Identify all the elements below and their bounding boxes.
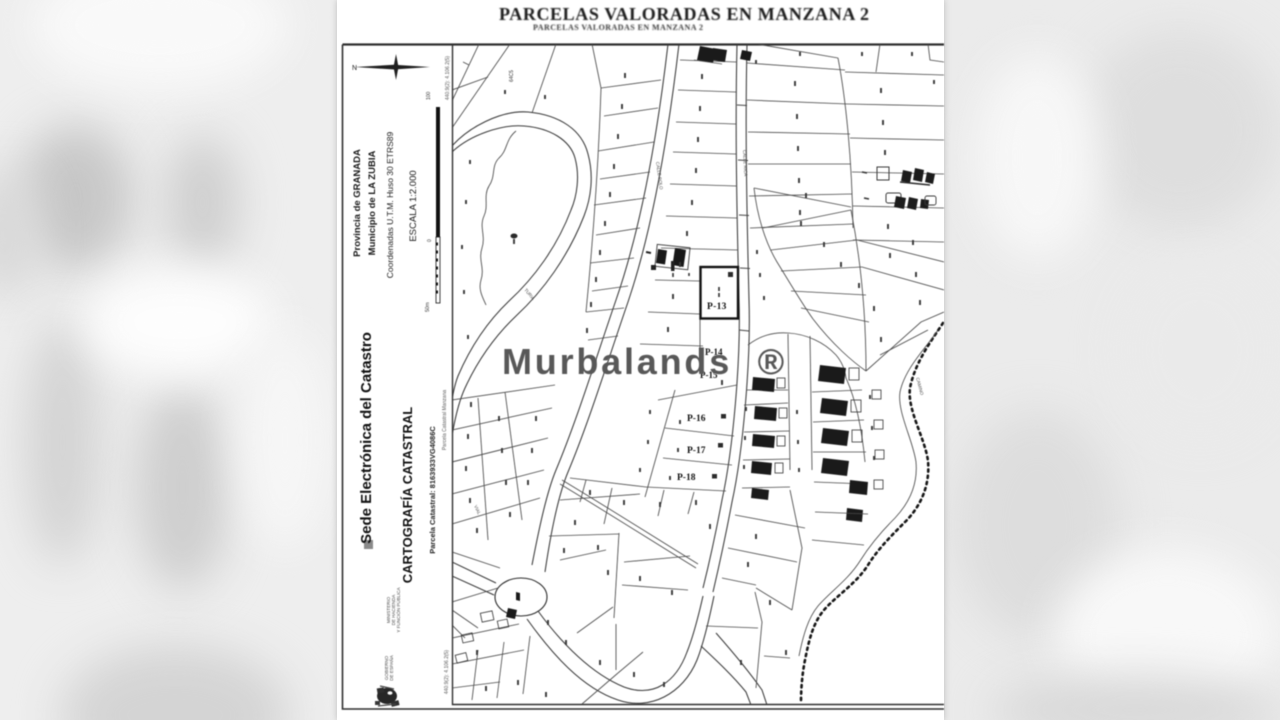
svg-text:64C5: 64C5 — [509, 70, 515, 82]
svg-text:Provincia de GRANADA: Provincia de GRANADA — [352, 149, 363, 257]
svg-text:100: 100 — [426, 91, 432, 100]
svg-text:N: N — [352, 65, 357, 72]
svg-text:50m: 50m — [425, 302, 431, 312]
svg-text:P-18: P-18 — [677, 473, 696, 483]
svg-text:P-16: P-16 — [687, 414, 706, 424]
svg-text:P-13: P-13 — [707, 302, 727, 312]
svg-text:CARTOGRAFÍA CATASTRAL: CARTOGRAFÍA CATASTRAL — [400, 407, 415, 584]
svg-text:ESCALA 1:2.000: ESCALA 1:2.000 — [408, 170, 419, 241]
svg-text:DE ESPAÑA: DE ESPAÑA — [388, 655, 394, 680]
svg-text:CALLE POLO: CALLE POLO — [655, 161, 664, 190]
svg-text:Parcela Catastral: 8163933VG40: Parcela Catastral: 8163933VG4086C — [428, 426, 437, 554]
svg-text:440.9(2): 4.106.2(5): 440.9(2): 4.106.2(5) — [444, 650, 450, 695]
svg-text:Y FUNCIÓN PÚBLICA: Y FUNCIÓN PÚBLICA — [395, 587, 401, 632]
svg-text:0: 0 — [427, 239, 433, 242]
svg-text:VIAL: VIAL — [473, 504, 482, 515]
svg-text:P-17: P-17 — [687, 446, 706, 456]
svg-text:CAMINO: CAMINO — [915, 377, 925, 396]
svg-text:TURIA: TURIA — [523, 287, 536, 301]
svg-text:Coordenadas U.T.M. Huso 30 ETR: Coordenadas U.T.M. Huso 30 ETRS89 — [385, 132, 395, 279]
svg-text:CALLE RICA: CALLE RICA — [742, 150, 748, 176]
svg-text:440.9(2): 4.106.2(5): 440.9(2): 4.106.2(5) — [445, 56, 451, 101]
svg-text:Sede Electrónica del Catastro: Sede Electrónica del Catastro — [358, 332, 375, 544]
svg-text:Parcela Catastral Manzana: Parcela Catastral Manzana — [442, 390, 448, 451]
svg-text:Municipio de LA ZUBIA: Municipio de LA ZUBIA — [367, 151, 378, 256]
